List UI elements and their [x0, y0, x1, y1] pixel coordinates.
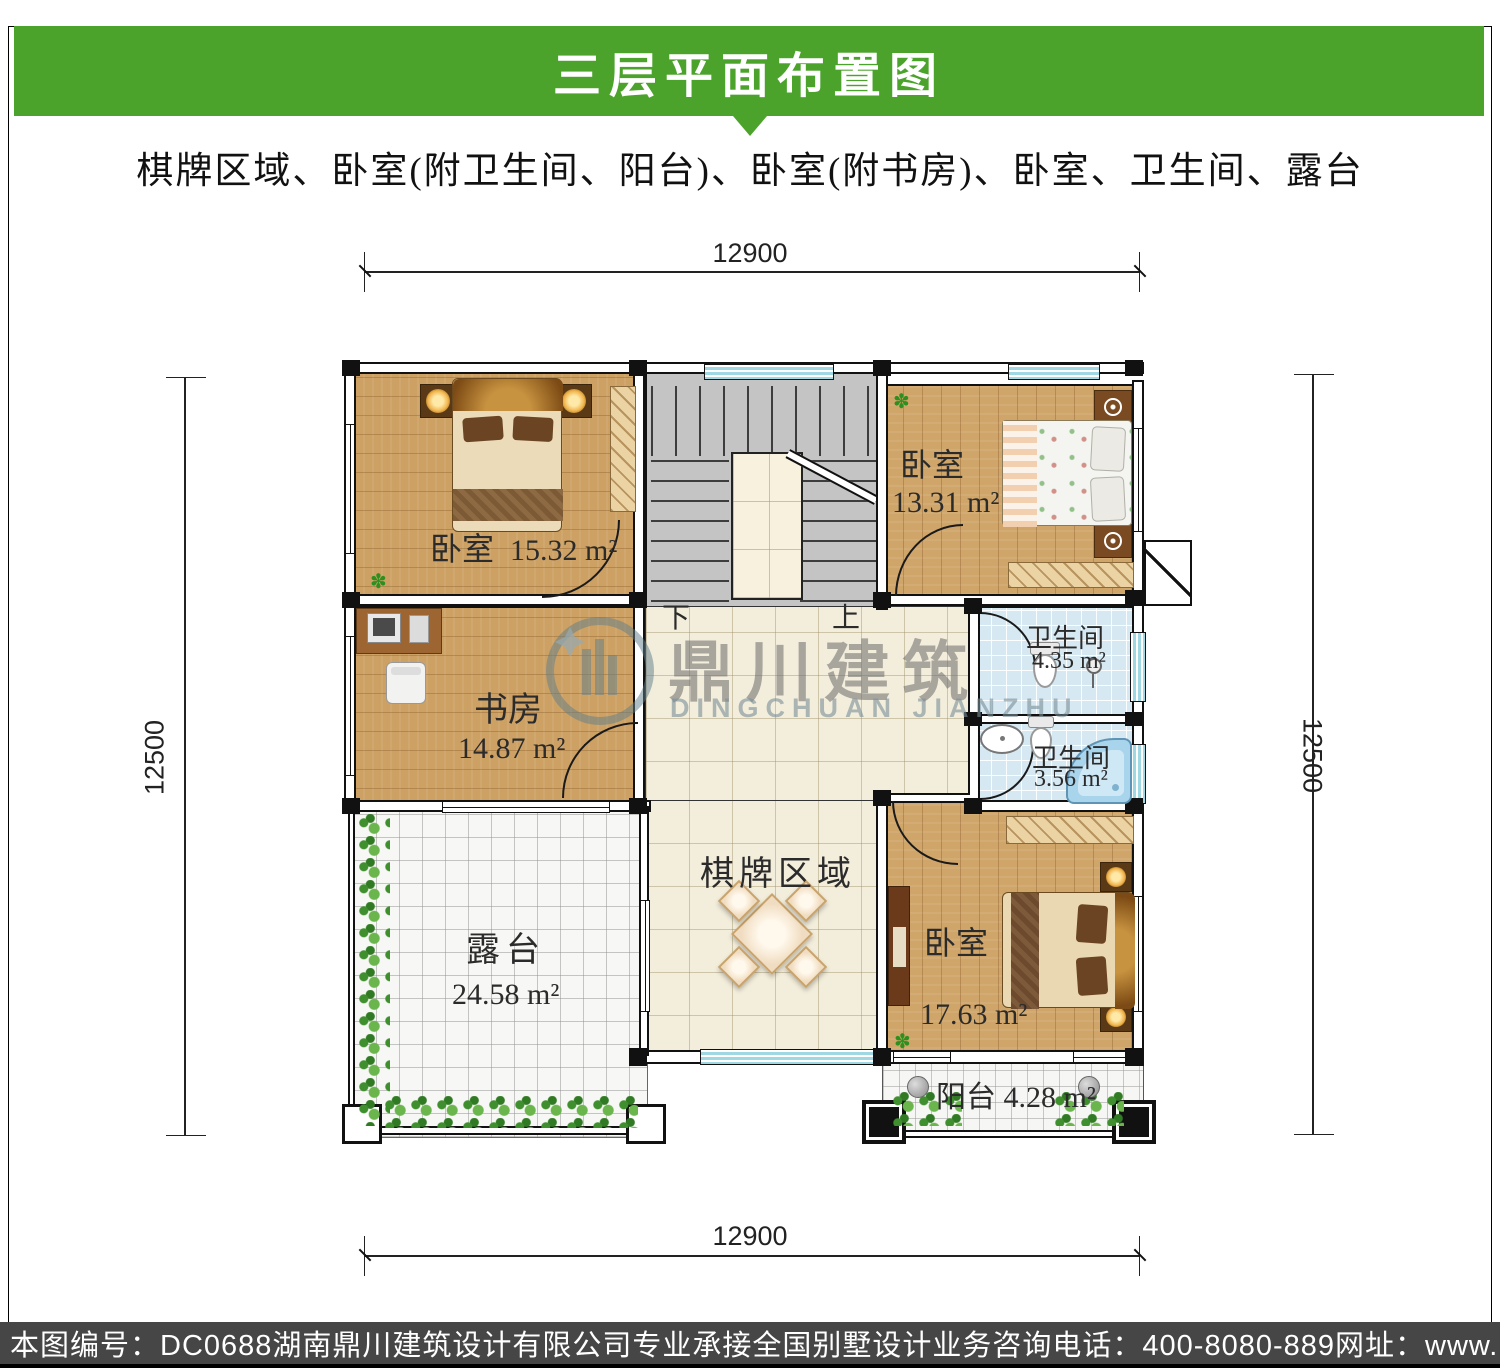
window-bedroomtr-top [1008, 364, 1100, 380]
stair-flight-top [651, 386, 876, 456]
bed-top-left [452, 378, 562, 532]
room-area: 24.58 m² [452, 978, 559, 1011]
tv-cabinet [888, 886, 910, 1006]
pillar [1125, 1048, 1143, 1066]
pillar [629, 592, 647, 608]
bed-bottom-right [1002, 892, 1134, 1008]
pillar [1125, 712, 1143, 726]
stair-up-label: 上 [832, 596, 860, 636]
balcony-finial [907, 1076, 929, 1098]
dim-right-value: 12500 [1297, 706, 1328, 806]
dim-line-top [365, 271, 1140, 273]
door-gap [895, 596, 961, 604]
wardrobe-bottom-right [1006, 816, 1134, 844]
room-name: 卧室 [430, 531, 494, 567]
pillar [1125, 360, 1143, 376]
window-bath-lower-right [1130, 744, 1146, 804]
label-balcony: 阳台 4.28 m² [936, 1072, 1096, 1116]
room-name: 卧室 [900, 447, 964, 483]
window-stair-top [704, 364, 834, 380]
label-bedroom-top-right-area: 13.31 m² [892, 486, 999, 520]
stair-void [731, 452, 803, 600]
pillar [873, 1048, 891, 1066]
footer-company: 湖南鼎川建筑设计有限公司专业承接全国别墅设计业务 [272, 1322, 992, 1364]
dim-top-value: 12900 [700, 238, 800, 269]
room-area: 3.56 m² [1034, 766, 1108, 792]
pillar [964, 712, 982, 726]
stair-flight-left [651, 456, 729, 602]
dim-tick [1294, 1134, 1334, 1135]
pillar [342, 360, 360, 376]
plant-sprig: ✽ [370, 572, 387, 592]
desk-chair [386, 662, 426, 704]
door-gap [970, 612, 978, 670]
title-banner: 三层平面布置图 [14, 26, 1484, 116]
footer-info-bar: 本图编号：DC0688 湖南鼎川建筑设计有限公司专业承接全国别墅设计业务 咨询电… [0, 1322, 1500, 1364]
room-name: 卧室 [924, 925, 988, 961]
door-gap [970, 748, 978, 804]
pillar [629, 1048, 647, 1066]
label-chess-area: 棋牌区域 [700, 846, 856, 895]
label-study-area: 14.87 m² [458, 732, 565, 766]
dim-tick [166, 377, 206, 378]
window-study-left [345, 636, 355, 776]
room-area: 13.31 m² [892, 486, 999, 519]
window-bedroomtl-left [345, 424, 355, 554]
dim-tick [1294, 374, 1334, 375]
wall-bedroombr-left [876, 793, 888, 1063]
label-study: 书房 [474, 682, 542, 731]
pillar [342, 592, 360, 608]
terrace-plants-left [356, 814, 390, 1126]
wall-bath-divider [968, 714, 1144, 724]
door-gap [542, 596, 622, 604]
footer-bottom-strip [0, 1364, 1500, 1368]
room-name: 书房 [474, 692, 542, 729]
plant-sprig: ✽ [894, 1032, 911, 1052]
footer-phone: 咨询电话：400-8080-889 [992, 1322, 1335, 1364]
plant-sprig: ✽ [893, 392, 910, 412]
floor-plan-page: 三层平面布置图 棋牌区域、卧室(附卫生间、阳台)、卧室(附书房)、卧室、卫生间、… [0, 0, 1500, 1368]
wardrobe-top-right [1008, 562, 1134, 588]
footer-website: 网址：www.bstzcs.com [1335, 1322, 1500, 1364]
room-name: 阳台 [936, 1081, 996, 1114]
room-area: 14.87 m² [458, 732, 565, 765]
room-area: 4.28 m² [1004, 1081, 1096, 1114]
window-study-bottom [442, 801, 610, 813]
bed-top-right [1002, 420, 1132, 526]
speaker-box [1094, 524, 1132, 558]
label-bedroom-bottom-right: 卧室 [924, 918, 988, 964]
nightstand-lamp [420, 384, 456, 418]
label-bedroom-top-right: 卧室 [900, 440, 964, 486]
room-area: 15.32 m² [510, 534, 617, 567]
banner-pointer-triangle [733, 116, 767, 136]
desk [356, 608, 442, 654]
wardrobe-top-left [610, 386, 636, 512]
room-area: 4.35 m² [1032, 648, 1106, 674]
label-terrace: 露台 [466, 922, 546, 971]
room-area: 17.63 m² [920, 998, 1027, 1031]
window-bath-upper-right [1130, 632, 1146, 702]
pillar [342, 798, 360, 814]
shower-hose [1092, 674, 1094, 688]
pillar [873, 592, 891, 608]
pillar [629, 360, 647, 376]
window-terrace-hall [640, 900, 650, 1012]
dim-left-value: 12500 [140, 708, 171, 808]
room-list-subtitle: 棋牌区域、卧室(附卫生间、阳台)、卧室(附书房)、卧室、卫生间、露台 [0, 140, 1500, 194]
footer-drawing-number: 本图编号：DC0688 [10, 1322, 272, 1364]
label-bath-lower-area: 3.56 m² [1034, 766, 1108, 793]
window-bedroombr-bottom-2 [1073, 1051, 1133, 1063]
nightstand-lamp [1100, 862, 1132, 892]
hall-chess-area-floor [645, 606, 976, 806]
pillar [629, 798, 647, 814]
stair-down-label: 下 [662, 596, 690, 636]
pillar [873, 360, 891, 376]
terrace-rail-left [348, 810, 355, 1138]
dim-line-left [184, 378, 186, 1136]
room-name: 露台 [466, 932, 546, 969]
pillar [873, 790, 891, 806]
window-hall-bottom [700, 1049, 878, 1065]
page-title: 三层平面布置图 [553, 36, 945, 106]
speaker-box [1094, 390, 1132, 424]
right-protrusion [1144, 540, 1192, 606]
pillar [964, 598, 982, 614]
dim-line-bottom [365, 1255, 1140, 1257]
label-terrace-area: 24.58 m² [452, 978, 559, 1012]
pillar [1125, 590, 1143, 606]
room-name: 棋牌区域 [700, 856, 856, 893]
wall-stair-right [876, 362, 888, 610]
label-bedroom-top-left: 卧室 15.32 m² [430, 524, 617, 570]
label-bath-upper-area: 4.35 m² [1032, 648, 1106, 675]
pillar [964, 798, 982, 814]
terrace-plants-bottom [382, 1096, 638, 1128]
balcony-rail-bottom [882, 1130, 1144, 1138]
terrace-floor [352, 810, 648, 1138]
dim-tick [166, 1135, 206, 1136]
dim-bottom-value: 12900 [700, 1221, 800, 1252]
window-bedroomtr-right [1133, 428, 1143, 532]
label-bedroom-bottom-right-area: 17.63 m² [920, 998, 1027, 1032]
sink [980, 724, 1024, 754]
